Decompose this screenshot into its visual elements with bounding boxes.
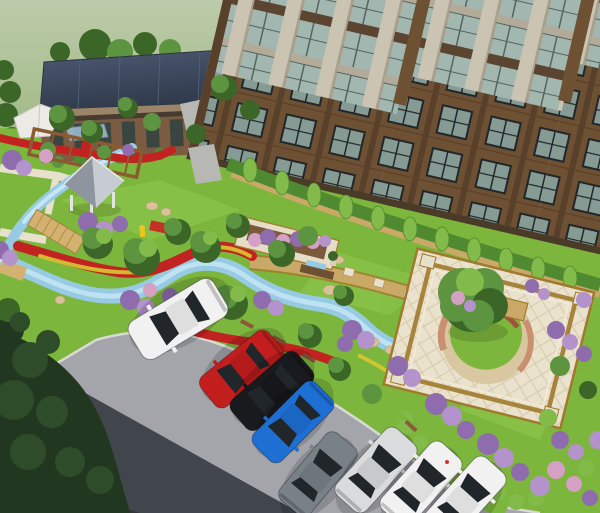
rendering-canvas xyxy=(0,0,600,513)
landscape-rendering xyxy=(0,0,600,513)
